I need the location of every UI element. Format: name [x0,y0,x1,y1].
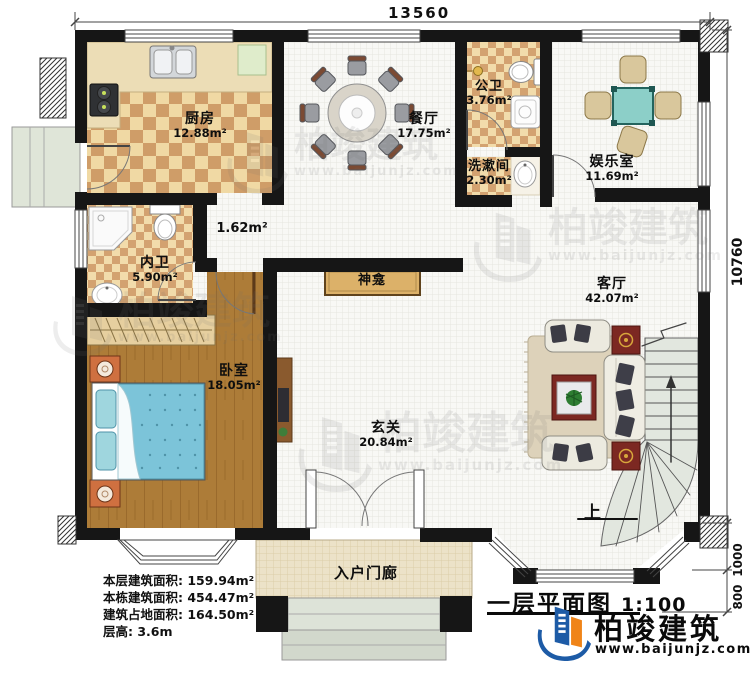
room-label-corridor: 1.62m² [216,222,267,236]
washroom-fixtures [511,155,540,195]
living-room-furniture [524,320,645,470]
area-statistics: 本层建筑面积: 159.94m² 本栋建筑面积: 454.47m² 建筑占地面积… [103,572,254,640]
room-label-bedroom: 卧室 18.05m² [207,364,260,391]
window-top-kitchen [125,30,233,42]
cutting-board [238,45,266,75]
window-right-entertainment [698,102,710,186]
dimension-width: 13560 [388,4,450,22]
room-label-private-bath: 内卫 5.90m² [132,256,177,283]
dimension-steps: 800 [731,584,745,609]
room-label-foyer: 玄关 20.84m² [359,421,412,448]
room-label-kitchen: 厨房 12.88m² [173,112,226,139]
room-label-shrine: 神龛 [358,274,386,288]
window-right-living [698,210,710,292]
pillow [96,390,116,428]
wardrobe [87,315,215,345]
window-top-dining [308,30,420,42]
porch-column [256,596,288,632]
game-table [613,88,653,124]
stat-floor-area: 本层建筑面积: 159.94m² [103,572,254,589]
dimension-height: 10760 [730,238,746,287]
room-label-washroom: 洗漱间 2.30m² [466,160,511,186]
window-left-bath [75,210,87,268]
pillow [96,432,116,470]
floorplan-page: 柏竣建筑 www.baijunjz.com 柏竣建筑 www.baijunjz.… [0,0,750,674]
bay-window-bedroom [118,540,237,564]
room-label-living: 客厅 42.07m² [585,277,638,304]
room-label-entertainment: 娱乐室 11.69m² [585,155,638,182]
room-label-public-bath: 公卫 3.76m² [466,80,511,106]
sofa-bottom [542,436,607,470]
brand-url: www.baijunjz.com [595,642,750,657]
room-label-dining: 餐厅 17.75m² [397,112,450,139]
room-label-porch: 入户门廊 [334,566,398,582]
window-top-entertainment [582,30,680,42]
porch-column [440,596,472,632]
light-symbol [474,67,483,76]
stat-footprint-area: 建筑占地面积: 164.50m² [103,606,254,623]
stat-building-area: 本栋建筑面积: 454.47m² [103,589,254,606]
stat-floor-height: 层高: 3.6m [103,623,254,640]
brand-logo-icon [533,603,591,661]
toilet [154,214,176,240]
stairs-up-label: 上 [584,498,601,523]
dimension-porch: 1000 [731,543,745,576]
